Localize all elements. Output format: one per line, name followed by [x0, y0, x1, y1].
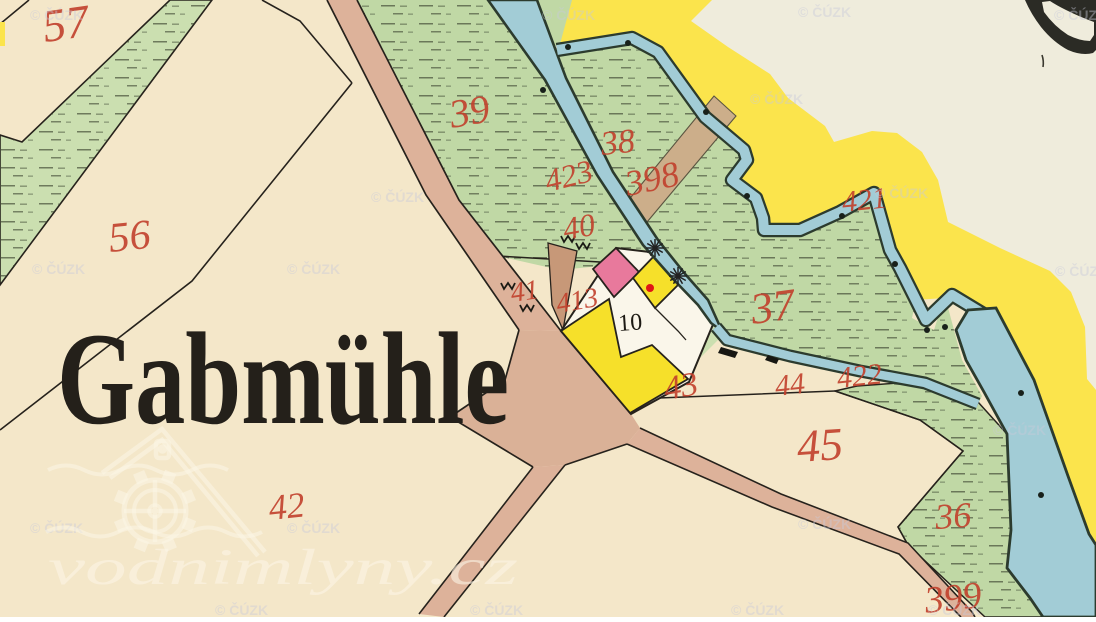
svg-text:44: 44	[773, 367, 806, 403]
svg-text:vodnimlyny.cz: vodnimlyny.cz	[48, 540, 518, 596]
svg-text:© ČÚZK: © ČÚZK	[371, 188, 424, 205]
svg-text:© ČÚZK: © ČÚZK	[32, 260, 85, 277]
svg-text:© ČÚZK: © ČÚZK	[731, 601, 784, 617]
svg-text:45: 45	[795, 418, 844, 472]
svg-text:© ČÚZK: © ČÚZK	[542, 6, 595, 23]
svg-text:37: 37	[747, 279, 800, 334]
svg-text:422: 422	[835, 357, 883, 395]
svg-text:© ČÚZK: © ČÚZK	[875, 184, 928, 201]
svg-text:© ČÚZK: © ČÚZK	[928, 601, 981, 617]
svg-text:56: 56	[106, 212, 153, 262]
svg-text:© ČÚZK: © ČÚZK	[1055, 262, 1096, 279]
svg-text:© ČÚZK: © ČÚZK	[1054, 6, 1096, 23]
svg-text:© ČÚZK: © ČÚZK	[798, 515, 851, 532]
svg-text:© ČÚZK: © ČÚZK	[993, 421, 1046, 438]
svg-text:© ČÚZK: © ČÚZK	[30, 6, 83, 23]
svg-text:10: 10	[617, 309, 643, 337]
svg-text:38: 38	[598, 123, 637, 163]
svg-text:40: 40	[560, 206, 598, 247]
svg-text:© ČÚZK: © ČÚZK	[215, 601, 268, 617]
svg-text:41: 41	[509, 274, 541, 309]
svg-text:© ČÚZK: © ČÚZK	[287, 260, 340, 277]
svg-text:© ČÚZK: © ČÚZK	[470, 601, 523, 617]
svg-text:39: 39	[445, 86, 493, 137]
svg-text:36: 36	[933, 495, 973, 537]
svg-text:© ČÚZK: © ČÚZK	[287, 519, 340, 536]
svg-text:Gabmühle: Gabmühle	[57, 305, 509, 452]
svg-text:43: 43	[661, 366, 701, 408]
svg-text:© ČÚZK: © ČÚZK	[798, 3, 851, 20]
svg-text:© ČÚZK: © ČÚZK	[750, 90, 803, 107]
